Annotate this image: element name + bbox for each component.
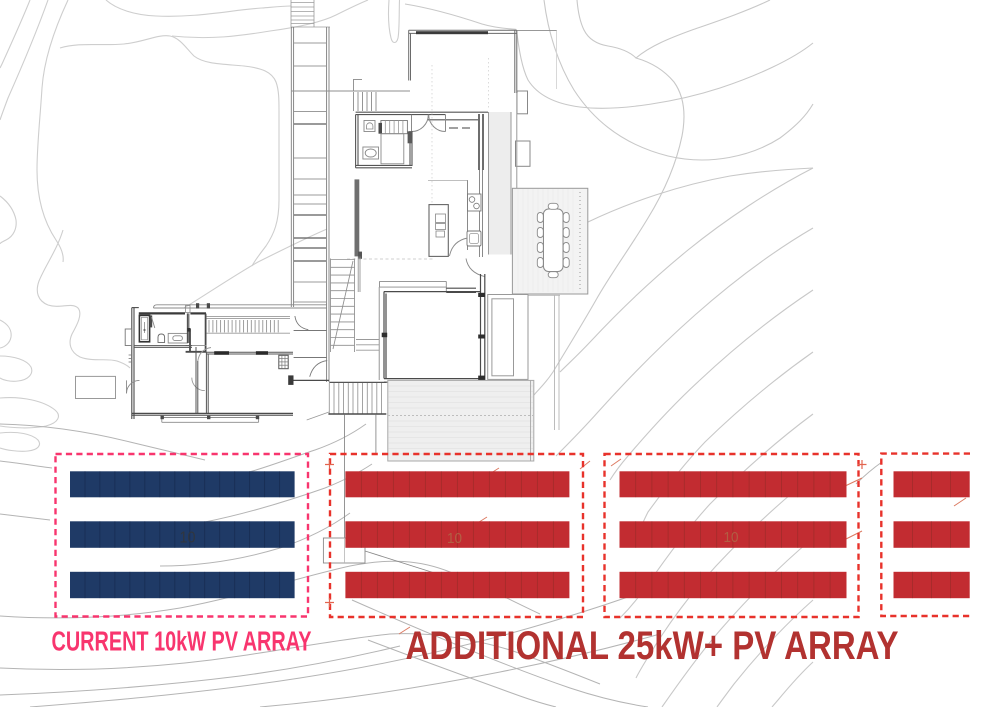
- svg-text:CURRENT 10kW PV ARRAY: CURRENT 10kW PV ARRAY: [52, 626, 312, 657]
- svg-text:10: 10: [724, 530, 739, 546]
- svg-text:ADDITIONAL 25kW+ PV ARRAY: ADDITIONAL 25kW+ PV ARRAY: [406, 624, 899, 668]
- svg-text:10: 10: [180, 530, 196, 547]
- svg-text:10: 10: [447, 531, 462, 547]
